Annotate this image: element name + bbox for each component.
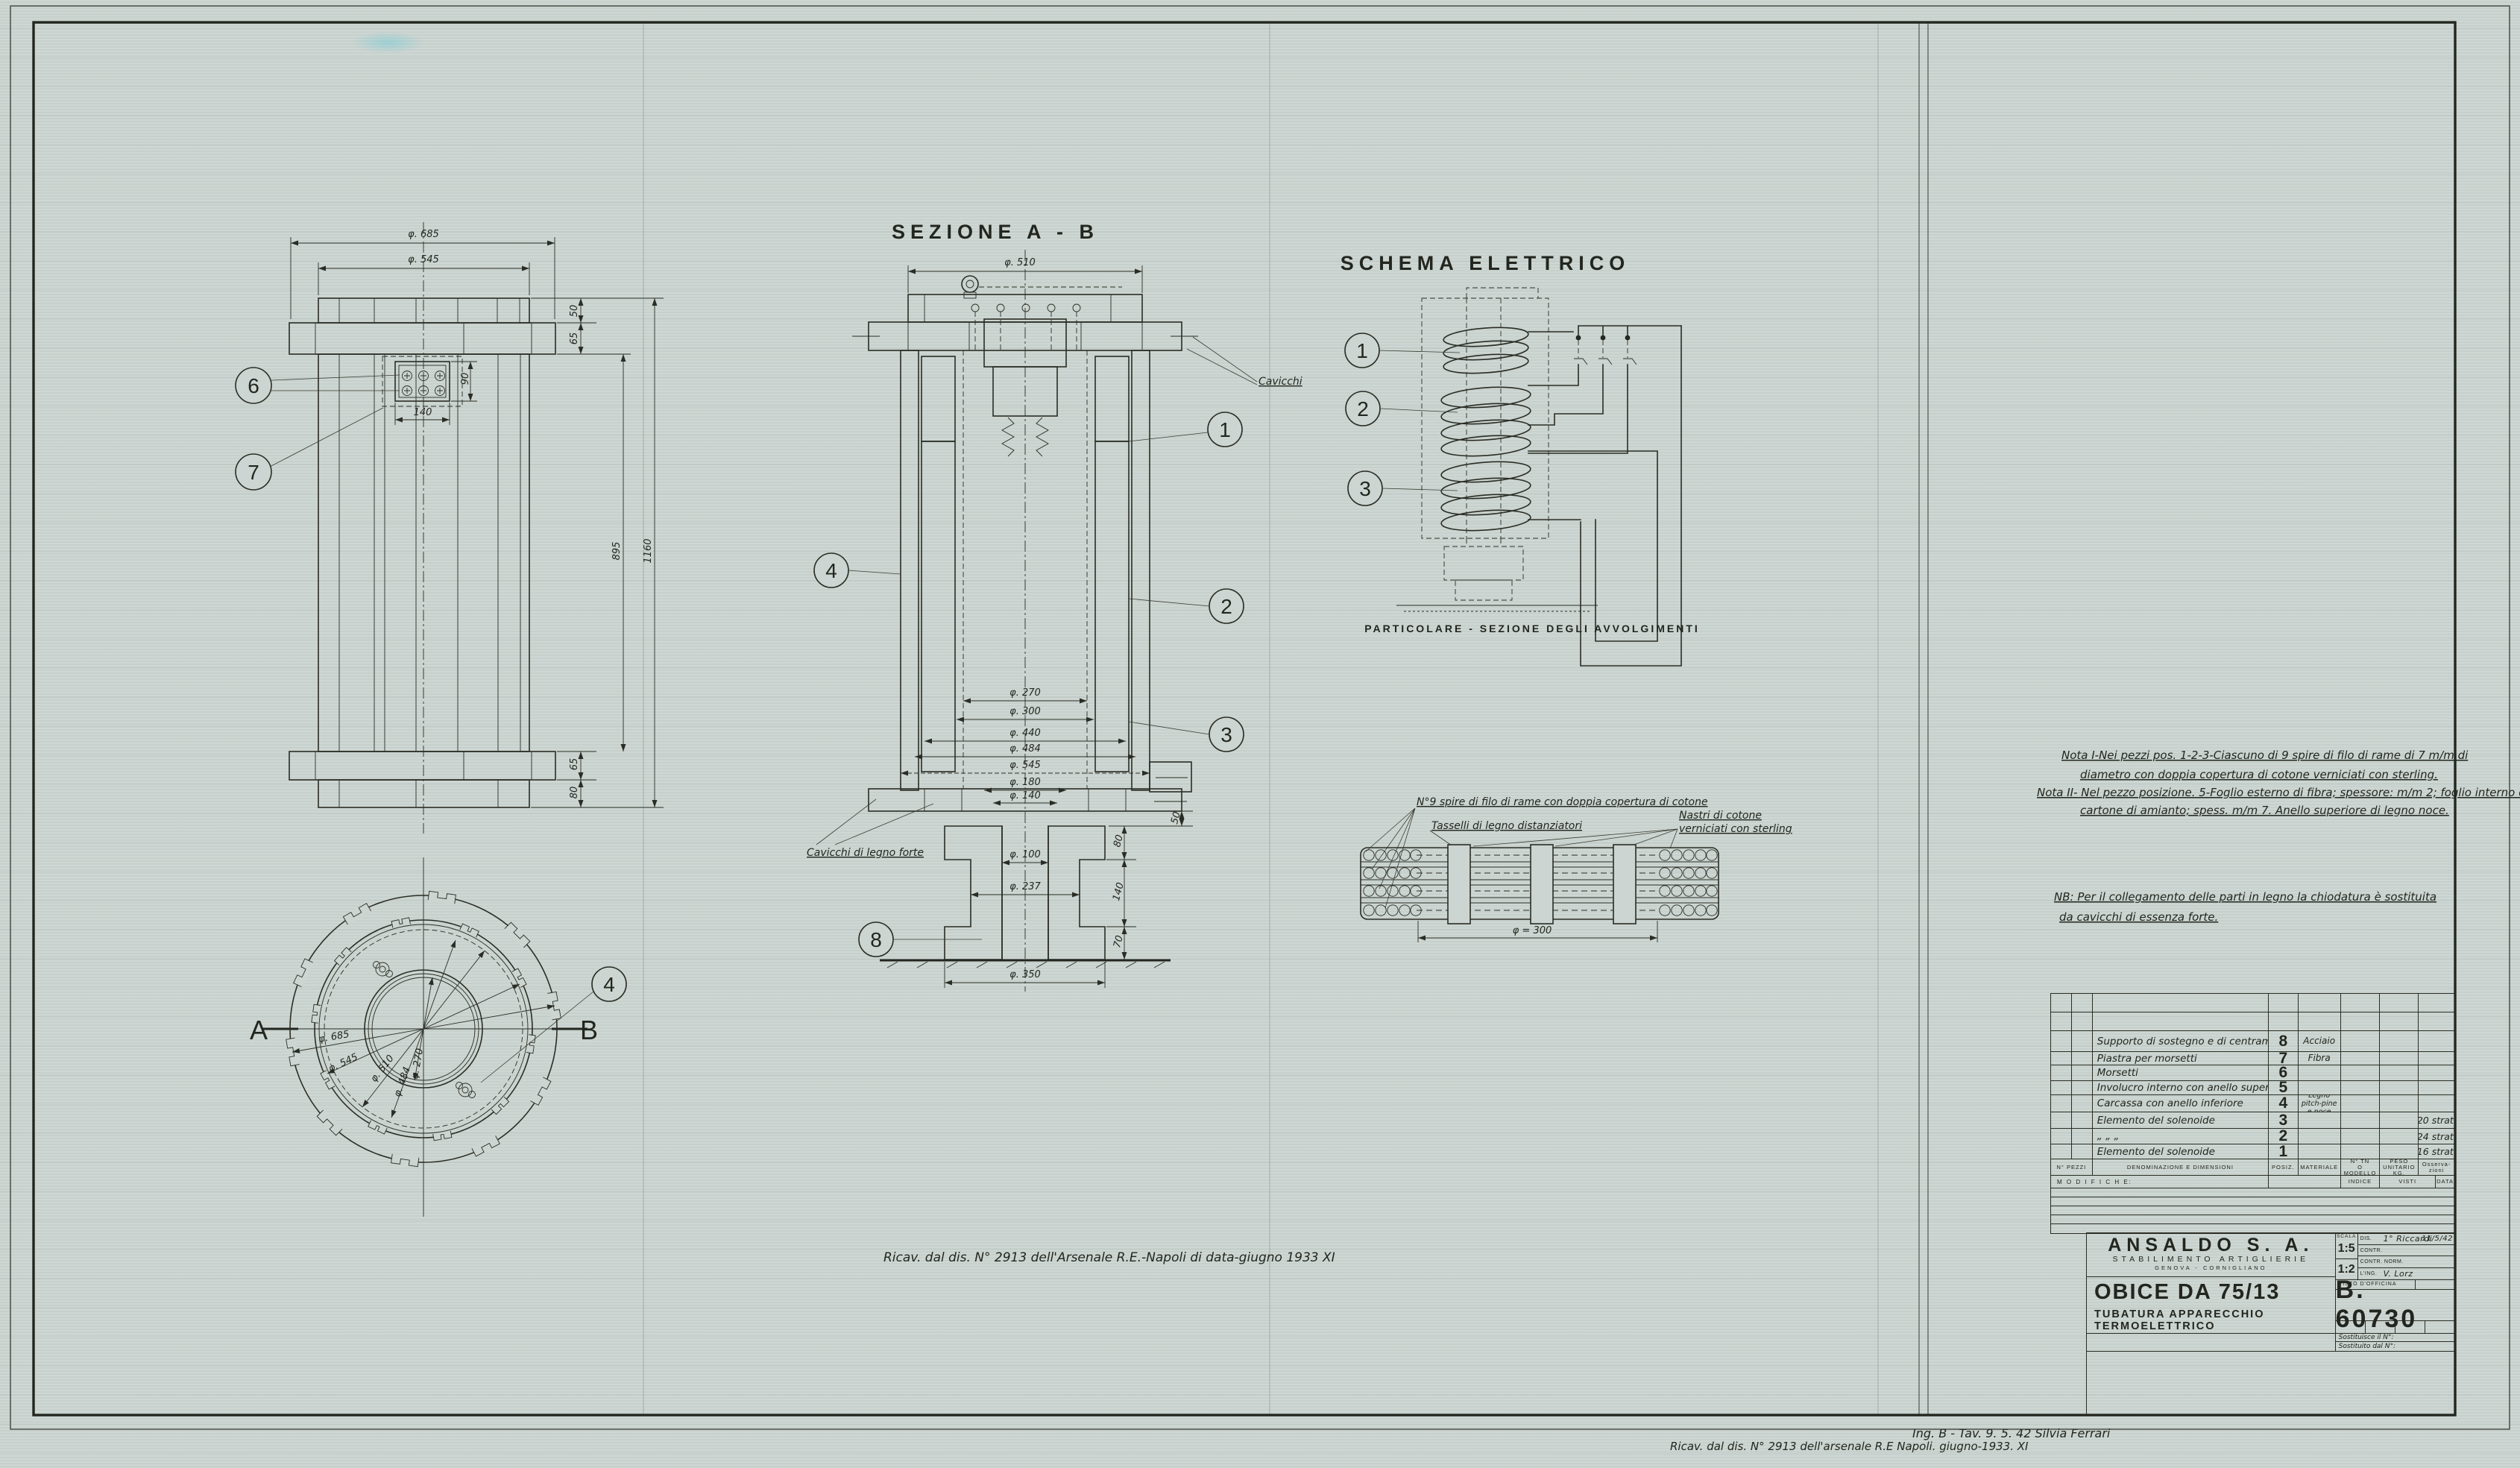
table-empty-row [2051,1197,2454,1206]
section-mark-b: B [580,1015,598,1045]
ing-signature: V. Lorz [2384,1269,2413,1279]
coil-1 [1443,325,1528,376]
section-mark-a: A [250,1015,268,1045]
nota2-line1: Nota II- Nel pezzo posizione. 5-Foglio e… [2037,786,2520,799]
svg-text:1: 1 [1356,339,1368,362]
svg-text:4: 4 [825,559,837,582]
part-obs [2419,1031,2454,1051]
nota1-line1: Nota I-Nei pezzi pos. 1-2-3-Ciascuno di … [2061,749,2469,762]
svg-text:7: 7 [248,461,259,484]
coil-3 [1440,459,1531,533]
dim-label: φ. 300 [1009,706,1041,717]
section-ab-view: SEZIONE A - B φ. 510 [807,221,1302,992]
table-empty-row [2051,1188,2454,1197]
part-pos: 5 [2269,1081,2299,1094]
part-name: „ „ „ [2093,1129,2269,1144]
callout-6: 6 [236,368,400,403]
title-block-filler [2086,1352,2455,1415]
dim-label: 80 [569,787,580,799]
part-obs [2419,1052,2454,1065]
part-name: Involucro interno con anello superiore [2093,1081,2269,1094]
part-pos: 6 [2269,1065,2299,1080]
sostituito-row: Sostituito dal N°: [2336,1342,2454,1351]
dim-label: φ. 685 [408,229,439,240]
dim-label: φ. 545 [1009,760,1041,771]
dim-label: 65 [569,333,580,345]
subject-subtitle: TUBATURA APPARECCHIO TERMOELETTRICO [2094,1308,2335,1332]
svg-text:2: 2 [1357,397,1369,420]
subject-title: OBICE DA 75/13 [2094,1280,2335,1304]
plan-view: A B φ. 685 φ. 545 φ. 510 φ. 484 φ. 270 4 [250,857,626,1217]
svg-text:6: 6 [248,374,259,397]
part-material [2299,1065,2341,1080]
signature-note: Ing. B - Tav. 9. 5. 42 Silvia Ferrari [1912,1426,2111,1440]
wood-spacers [1448,845,1636,924]
dim-label: 70 [1112,934,1126,949]
schema-caption: PARTICOLARE - SEZIONE DEGLI AVVOLGIMENTI [1364,623,1700,634]
wire-sections-right [1660,850,1717,916]
dim-label: φ. 180 [1009,777,1041,788]
part-material [2299,1129,2341,1144]
wing-screw [374,962,393,977]
header-denominazione: DENOMINAZIONE E DIMENSIONI [2093,1159,2269,1175]
dim-label: φ = 300 [1513,925,1552,936]
part-pos: 7 [2269,1052,2299,1065]
schema-wiring [1528,326,1681,666]
company-header: ANSALDO S. A. STABILIMENTO ARTIGLIERIE G… [2087,1233,2335,1277]
table-empty-row [2051,1012,2454,1031]
dim-label: 140 [414,407,432,418]
part-pos: 4 [2269,1095,2299,1112]
part-obs [2419,1095,2454,1112]
company-location: GENOVA - CORNIGLIANO [2087,1264,2335,1271]
part-pos: 2 [2269,1129,2299,1144]
part-name: Elemento del solenoide [2093,1144,2269,1159]
table-row: Elemento del solenoide 1 16 strati [2051,1144,2454,1159]
coil-2 [1440,385,1531,459]
spire-label: N°9 spire di filo di rame con doppia cop… [1417,796,1708,808]
contr-norm-row: CONTR. NORM. [2358,1256,2454,1268]
part-name: Elemento del solenoide [2093,1112,2269,1128]
wing-screw [456,1083,476,1098]
handwritten-annotations: Ricav. dal dis. N° 2913 dell'Arsenale R.… [883,1250,2111,1453]
part-material [2299,1144,2341,1159]
part-obs: 20 strati [2419,1112,2454,1128]
header-osservazioni: Osserva-zioni [2419,1159,2454,1175]
nota2-line2: cartone di amianto; spess. m/m 7. Anello… [2080,804,2449,817]
svg-text:8: 8 [870,928,882,951]
part-name: Piastra per morsetti [2093,1052,2269,1065]
callout-1: 1 [1129,412,1242,447]
table-header-row: N° PEZZI DENOMINAZIONE E DIMENSIONI POSI… [2051,1159,2454,1176]
scale-label: SCALA [2337,1234,2356,1239]
dim-label: 90 [460,373,471,385]
tasselli-label: Tasselli di legno distanziatori [1431,820,1582,832]
svg-text:1: 1 [1219,418,1231,441]
table-row: Involucro interno con anello superiore 5 [2051,1081,2454,1095]
table-row: Supporto di sostegno e di centramento 8 … [2051,1031,2454,1052]
bottom-source-note: Ricav. dal dis. N° 2913 dell'arsenale R.… [1670,1440,2029,1453]
part-obs [2419,1081,2454,1094]
contr-row: CONTR. [2358,1245,2454,1257]
winding-detail: N°9 spire di filo di rame con doppia cop… [1361,796,1792,942]
dim-label: φ. 510 [1004,257,1036,268]
part-pos: 1 [2269,1144,2299,1159]
cavicchi-label: Cavicchi [1259,376,1302,388]
table-empty-row [2051,1206,2454,1215]
dim-label: 80 [1112,834,1126,848]
nb-line1: NB: Per il collegamento delle parti in l… [2054,890,2436,904]
dim-label: 895 [611,542,623,561]
dim-label: φ. 237 [1009,881,1041,892]
indice-label: INDICE [2341,1176,2381,1188]
parts-table: Supporto di sostegno e di centramento 8 … [2050,993,2455,1234]
part-obs: 16 strati [2419,1144,2454,1159]
dim-label: φ. 484 [392,1065,413,1098]
callout-8: 8 [859,922,982,957]
table-row: Elemento del solenoide 3 20 strati [2051,1112,2454,1129]
dim-label: φ. 350 [1009,969,1041,980]
header-pezzi: N° PEZZI [2051,1159,2093,1175]
dim-label: φ. 100 [1009,849,1041,860]
svg-text:3: 3 [1220,723,1232,746]
lid-bolts [971,304,1080,350]
dim-label: 65 [569,758,580,771]
nb-line2: da cavicchi di essenza forte. [2059,910,2218,924]
blueprint-page: { "palette": {"paper":"#ccd5d1","ink":"#… [0,0,2520,1468]
dim-label: 1160 [643,538,654,563]
drawing-subject: OBICE DA 75/13 TUBATURA APPARECCHIO TERM… [2087,1277,2335,1334]
revision-cells [2336,1321,2454,1335]
front-elevation-view: φ. 685 φ. 545 50 65 90 140 [236,222,664,834]
ing-row: L'ING. V. Lorz [2358,1268,2454,1279]
center-source-note: Ricav. dal dis. N° 2913 dell'Arsenale R.… [883,1250,1335,1265]
nastri-label-1: Nastri di cotone [1679,810,1762,822]
part-name: Morsetti [2093,1065,2269,1080]
header-modello: N° TNO MODELLO [2341,1159,2381,1175]
part-material: Legno pitch-pine e noce [2299,1095,2341,1112]
table-empty-row [2051,994,2454,1012]
callout-2: 2 [1129,589,1244,623]
sostituisce-row: Sostituisce il N°: [2336,1334,2454,1342]
callout-7: 7 [236,408,383,490]
schema-callout-2: 2 [1346,391,1458,426]
part-obs: 24 strati [2419,1129,2454,1144]
company-name: ANSALDO S. A. [2087,1236,2335,1255]
modifiche-label: M O D I F I C H E: [2051,1176,2269,1188]
svg-text:3: 3 [1359,477,1371,500]
callout-4: 4 [814,553,901,587]
part-name: Carcassa con anello inferiore [2093,1095,2269,1112]
dim-label: φ. 545 [408,254,439,265]
schema-title: SCHEMA ELETTRICO [1341,252,1631,274]
table-row: Piastra per morsetti 7 Fibra [2051,1052,2454,1065]
header-materiale: MATERIALE [2299,1159,2341,1175]
electrical-schema: SCHEMA ELETTRICO [1341,252,1700,666]
dim-label: φ. 140 [1009,790,1041,801]
nastri-label-2: verniciati con sterling [1679,823,1792,835]
svg-text:2: 2 [1220,595,1232,618]
part-pos: 3 [2269,1112,2299,1128]
part-material [2299,1081,2341,1094]
dim-label: φ. 440 [1009,728,1041,739]
table-row: Carcassa con anello inferiore 4 Legno pi… [2051,1095,2454,1112]
part-material: Acciaio [2299,1031,2341,1051]
nota1-line2: diametro con doppia copertura di cotone … [2080,768,2438,781]
scale-cell: SCALA 1:5 1:2 [2336,1233,2358,1279]
dim-label: φ. 545 [327,1051,359,1074]
section-title: SEZIONE A - B [892,221,1099,243]
scale-1: 1:5 [2336,1239,2357,1259]
data-label: DATA [2436,1176,2454,1188]
dim-label: 50 [1169,810,1183,825]
part-name: Supporto di sostegno e di centramento [2093,1031,2269,1051]
dim-label: φ. 270 [1009,687,1041,699]
notes-block: Nota I-Nei pezzi pos. 1-2-3-Ciascuno di … [2037,749,2520,924]
modifiche-row: M O D I F I C H E: INDICE VISTI DATA [2051,1176,2454,1188]
svg-text:4: 4 [603,973,615,996]
header-peso: PESOUNITARIOKG. [2380,1159,2419,1175]
dis-row: DIS. 1° Riccardi 11/5/42 [2358,1233,2454,1245]
title-block: ANSALDO S. A. STABILIMENTO ARTIGLIERIE G… [2086,1232,2455,1352]
schema-callout-1: 1 [1345,333,1460,368]
table-row: Morsetti 6 [2051,1065,2454,1081]
part-obs [2419,1065,2454,1080]
cavicchi-legno-label: Cavicchi di legno forte [807,847,924,859]
company-division: STABILIMENTO ARTIGLIERIE [2087,1255,2335,1264]
drawing-number: B. 60730 [2336,1290,2454,1321]
dim-label: 50 [569,305,580,318]
callout-3: 3 [1129,717,1244,752]
part-material [2299,1112,2341,1128]
dim-label: φ. 484 [1009,743,1041,755]
visti-label: VISTI [2380,1176,2436,1188]
table-row: „ „ „ 2 24 strati [2051,1129,2454,1144]
callout-4-plan: 4 [481,967,626,1083]
part-pos: 8 [2269,1031,2299,1051]
table-empty-row [2051,1215,2454,1224]
header-posiz: POSIZ. [2269,1159,2299,1175]
dis-date: 11/5/42 [2422,1235,2453,1243]
part-material: Fibra [2299,1052,2341,1065]
